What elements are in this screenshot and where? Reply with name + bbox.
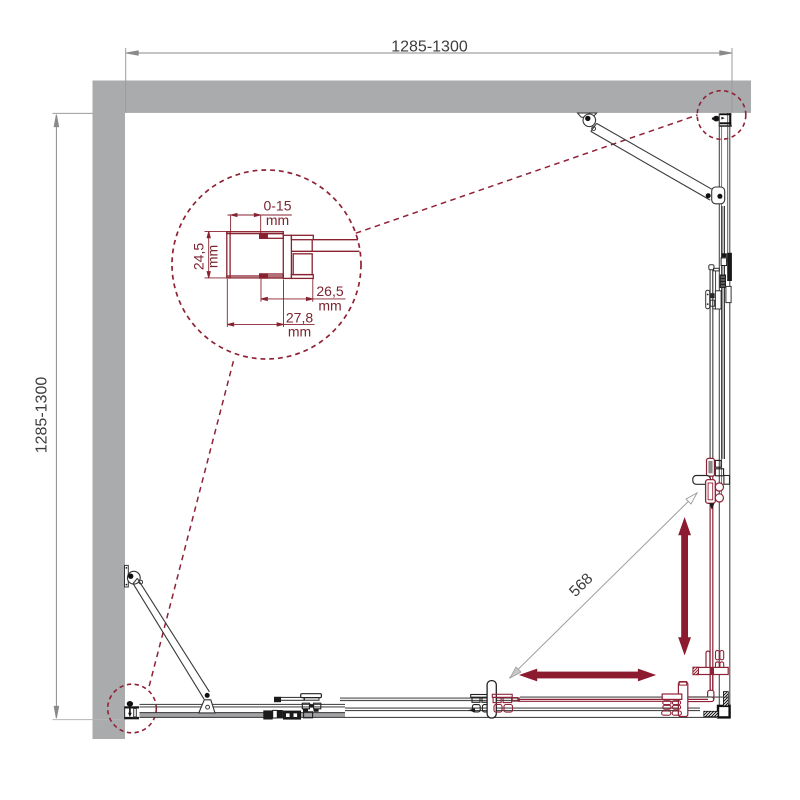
- svg-text:mm: mm: [318, 298, 341, 314]
- svg-text:0-15: 0-15: [263, 197, 291, 213]
- svg-text:1285-1300: 1285-1300: [391, 38, 468, 55]
- svg-text:mm: mm: [288, 323, 311, 339]
- svg-text:mm: mm: [266, 212, 289, 228]
- svg-text:mm: mm: [204, 245, 220, 268]
- svg-text:1285-1300: 1285-1300: [33, 377, 50, 454]
